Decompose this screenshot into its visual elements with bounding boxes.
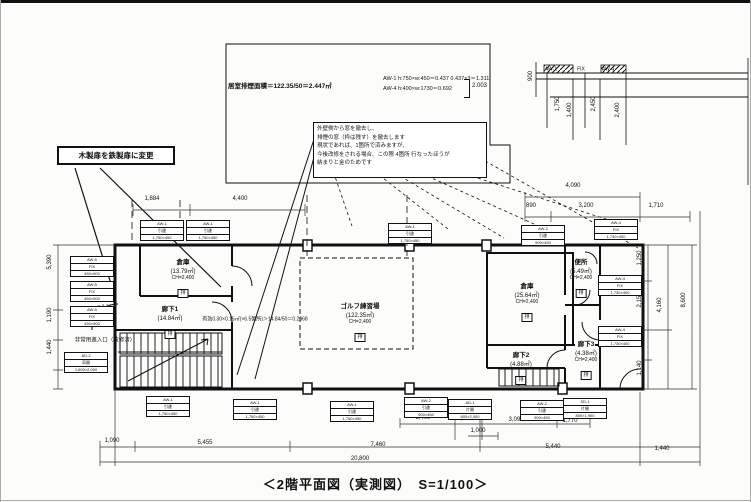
dim-label: 有効0.30×0.15㎡(×6.5箇所)＞14.84/50＝0.2968	[202, 318, 307, 323]
window-tag: AW-5FIX450×900	[70, 281, 114, 302]
window-tag-row: AW-2	[405, 398, 447, 405]
calc-brace	[464, 79, 470, 98]
dim-label: AW-4	[602, 68, 614, 73]
window-tag-row: AW-1	[389, 224, 431, 231]
dim-label: 7,460	[370, 442, 385, 448]
room-area: (25.64㎡)	[514, 290, 539, 299]
floor-plan-page: 木製扉を鉄製扉に変更 居室排煙面積＝122.35/50＝2.447㎡ AW-1 …	[0, 0, 751, 502]
window-tag-row: 1,750×450	[187, 235, 229, 241]
calc-total: 2.003	[472, 83, 487, 89]
dim-label: 8,600	[681, 292, 687, 307]
dim-label: 1,710	[648, 203, 663, 209]
room-label: 倉庫(13.79㎡)CH=2,400排	[170, 256, 195, 299]
window-tag-row: 片開	[449, 407, 491, 414]
window-tag-row: 引違	[389, 231, 431, 238]
dim-label: 900	[528, 71, 534, 81]
note-line: 排煙の窓（枠は残す）を撤去します	[317, 134, 483, 143]
window-tag-row: AW-5	[71, 307, 113, 314]
note-line: 今後改修をされる場合、この際 4箇所 行なったほうが	[317, 151, 483, 160]
room-ceiling-height: CH=2,400	[575, 357, 598, 363]
dim-label: 1,440	[654, 446, 669, 452]
window-tag: AW-5FIX450×900	[70, 256, 114, 277]
room-ceiling-height: CH=2,400	[170, 275, 195, 281]
dim-label: 4,400	[232, 196, 247, 202]
room-smoke-tag: 排	[580, 371, 591, 380]
dim-label: 890	[526, 203, 536, 209]
room-area: (13.79㎡)	[170, 266, 195, 275]
room-label: 廊下3(4.38㎡)CH=2,400排	[575, 338, 598, 381]
window-tag: AW-5FIX450×900	[70, 306, 114, 327]
room-name: 倉庫	[170, 256, 195, 266]
dim-label: 1,400	[567, 102, 573, 117]
window-tag: AW-1引違1,750×450	[146, 396, 190, 417]
window-tag-row: 1,730×400	[599, 341, 641, 347]
window-tag-row: 引違	[331, 409, 373, 416]
window-tag-row: AW-2	[521, 401, 563, 408]
dim-label: 1,140	[637, 360, 643, 375]
dim-label: 非常用進入口（改修済）	[75, 338, 136, 344]
window-tag-row: 引違	[522, 233, 564, 240]
window-tag: AD-1片開800×2,000	[448, 399, 492, 420]
room-area: (5.49㎡)	[570, 266, 593, 275]
window-tag-row: 1,750×450	[234, 414, 276, 420]
window-tag-row: AW-1	[234, 400, 276, 407]
window-tag-row: 1,750×450	[331, 416, 373, 422]
room-smoke-tag: 排	[575, 289, 586, 298]
window-tag: AW-1引違1,750×450	[186, 220, 230, 241]
window-tag-row: 1,730×400	[595, 234, 637, 240]
labels-overlay: 木製扉を鉄製扉に変更 居室排煙面積＝122.35/50＝2.447㎡ AW-1 …	[0, 0, 751, 502]
window-tag-row: AW-5	[71, 282, 113, 289]
window-tag-row: FIX	[71, 289, 113, 296]
window-tag-row: 900×450	[405, 412, 447, 418]
room-name: 倉庫	[514, 280, 539, 290]
dim-label: AW-1	[545, 68, 557, 73]
room-name: 廊下1	[157, 303, 182, 313]
window-tag: AW-1引違1,750×450	[140, 220, 184, 241]
window-tag-row: 1,730×400	[599, 290, 641, 296]
window-tag-row: FIX	[71, 314, 113, 321]
window-tag-row: AW-1	[187, 221, 229, 228]
window-tag-row: 引違	[521, 408, 563, 415]
window-tag-row: 900×450	[521, 415, 563, 421]
window-tag-row: 1,750×450	[389, 238, 431, 244]
room-name: 便所	[570, 256, 593, 266]
dim-label: 4,160	[657, 297, 663, 312]
note-line: 外壁側から窓を撤去し、	[317, 125, 483, 134]
dim-label: 2,450	[591, 96, 597, 111]
dim-label: 5,455	[197, 440, 212, 446]
window-tag: AW-1引違1,750×450	[233, 399, 277, 420]
window-tag-row: AW-1	[147, 397, 189, 404]
window-tag-row: 800×2,000	[449, 414, 491, 420]
dim-label: 2,400	[615, 102, 621, 117]
window-tag-row: 片開	[564, 406, 606, 413]
dim-label: 4,090	[565, 183, 580, 189]
room-smoke-tag: 排	[177, 289, 188, 298]
window-tag: AW-1引違1,750×450	[330, 401, 374, 422]
window-tag-row: FIX	[71, 264, 113, 271]
room-ceiling-height: CH=2,400	[514, 299, 539, 305]
window-tag-row: 450×900	[71, 271, 113, 277]
room-smoke-tag: 排	[521, 313, 532, 322]
note-line: 納まりと金のためです	[317, 159, 483, 168]
window-tag-row: AD-2	[65, 353, 107, 360]
window-tag-row: 1,750×450	[141, 235, 183, 241]
room-area: (4.38㎡)	[575, 348, 598, 357]
dim-label: 3,200	[578, 203, 593, 209]
window-tag: AD-2両開1,600×2,000	[64, 352, 108, 373]
window-tag-row: 引違	[141, 228, 183, 235]
window-tag: AW-2引違900×450	[521, 225, 565, 246]
window-tag-row: 1,600×2,000	[65, 367, 107, 373]
window-tag-row: AW-4	[599, 276, 641, 283]
drawing-caption: ＜2階平面図（実測図） S=1/100＞	[0, 474, 751, 493]
window-tag-row: 1,750×450	[147, 411, 189, 417]
room-smoke-tag: 排	[515, 376, 526, 385]
room-name: 廊下2	[510, 349, 532, 359]
dim-label: 1,000	[470, 428, 485, 434]
window-tag: AW-2引違900×450	[520, 400, 564, 421]
window-tag: SD-1片開800×1,900	[563, 398, 607, 419]
window-tag-row: AW-4	[599, 327, 641, 334]
door-change-callout: 木製扉を鉄製扉に変更	[57, 146, 175, 165]
dim-label: 1,090	[104, 438, 119, 444]
dim-label: 1,440	[47, 339, 53, 354]
window-tag-row: 800×1,900	[564, 413, 606, 419]
window-tag-row: 引違	[187, 228, 229, 235]
room-smoke-tag: 排	[354, 333, 365, 342]
window-tag: AW-4FIX1,730×400	[594, 219, 638, 240]
room-label: 廊下2(4.88㎡)排	[510, 349, 532, 386]
room-label: 便所(5.49㎡)CH=2,400排	[570, 256, 593, 299]
window-tag-row: AW-4	[595, 220, 637, 227]
dim-label: 1,884	[144, 196, 159, 202]
window-tag-row: AW-1	[331, 402, 373, 409]
room-name: ゴルフ練習場	[341, 300, 380, 310]
room-smoke-tag: 排	[164, 330, 175, 339]
window-tag: AW-4FIX1,730×400	[598, 275, 642, 296]
window-tag: AW-1引違1,750×450	[388, 223, 432, 244]
room-ceiling-height: CH=2,400	[341, 319, 380, 325]
room-area: (4.88㎡)	[510, 359, 532, 368]
room-area: (14.84㎡)	[157, 313, 182, 322]
window-tag-row: FIX	[599, 334, 641, 341]
dim-label: 1,750	[555, 96, 561, 111]
window-tag-row: 引違	[405, 405, 447, 412]
dim-label: 1,250	[637, 250, 643, 265]
window-tag-row: AD-1	[449, 400, 491, 407]
window-tag-row: FIX	[595, 227, 637, 234]
room-label: ゴルフ練習場(122.35㎡)CH=2,400排	[341, 300, 380, 343]
room-area: (122.35㎡)	[341, 310, 380, 319]
window-tag-row: 450×900	[71, 321, 113, 327]
renovation-note-box: 外壁側から窓を撤去し、排煙の窓（枠は残す）を撤去します現状であれば、1箇所で済み…	[313, 122, 487, 178]
window-tag: AW-2引違900×450	[404, 397, 448, 418]
window-tag-row: FIX	[599, 283, 641, 290]
smoke-exhaust-calc: 居室排煙面積＝122.35/50＝2.447㎡	[228, 80, 332, 90]
window-tag-row: 引違	[234, 407, 276, 414]
window-tag: AW-4FIX1,730×400	[598, 326, 642, 347]
window-tag-row: AW-2	[522, 226, 564, 233]
window-tag-row: 引違	[147, 404, 189, 411]
dim-label: 1,190	[47, 307, 53, 322]
window-tag-row: 450×900	[71, 296, 113, 302]
room-ceiling-height: CH=2,400	[570, 275, 593, 281]
room-name: 廊下3	[575, 338, 598, 348]
note-line: 現状であれば、1箇所で済みますが、	[317, 142, 483, 151]
window-tag-row: SD-1	[564, 399, 606, 406]
dim-label: 5,440	[545, 444, 560, 450]
room-label: 廊下1(14.84㎡)排	[157, 303, 182, 340]
window-tag-row: 900×450	[522, 240, 564, 246]
window-tag-row: AW-1	[141, 221, 183, 228]
room-label: 倉庫(25.64㎡)CH=2,400排	[514, 280, 539, 323]
dim-label: 20,800	[351, 456, 369, 462]
window-tag-row: AW-5	[71, 257, 113, 264]
dim-label: 5,390	[47, 254, 53, 269]
dim-label: FIX	[577, 68, 585, 73]
window-tag-row: 両開	[65, 360, 107, 367]
